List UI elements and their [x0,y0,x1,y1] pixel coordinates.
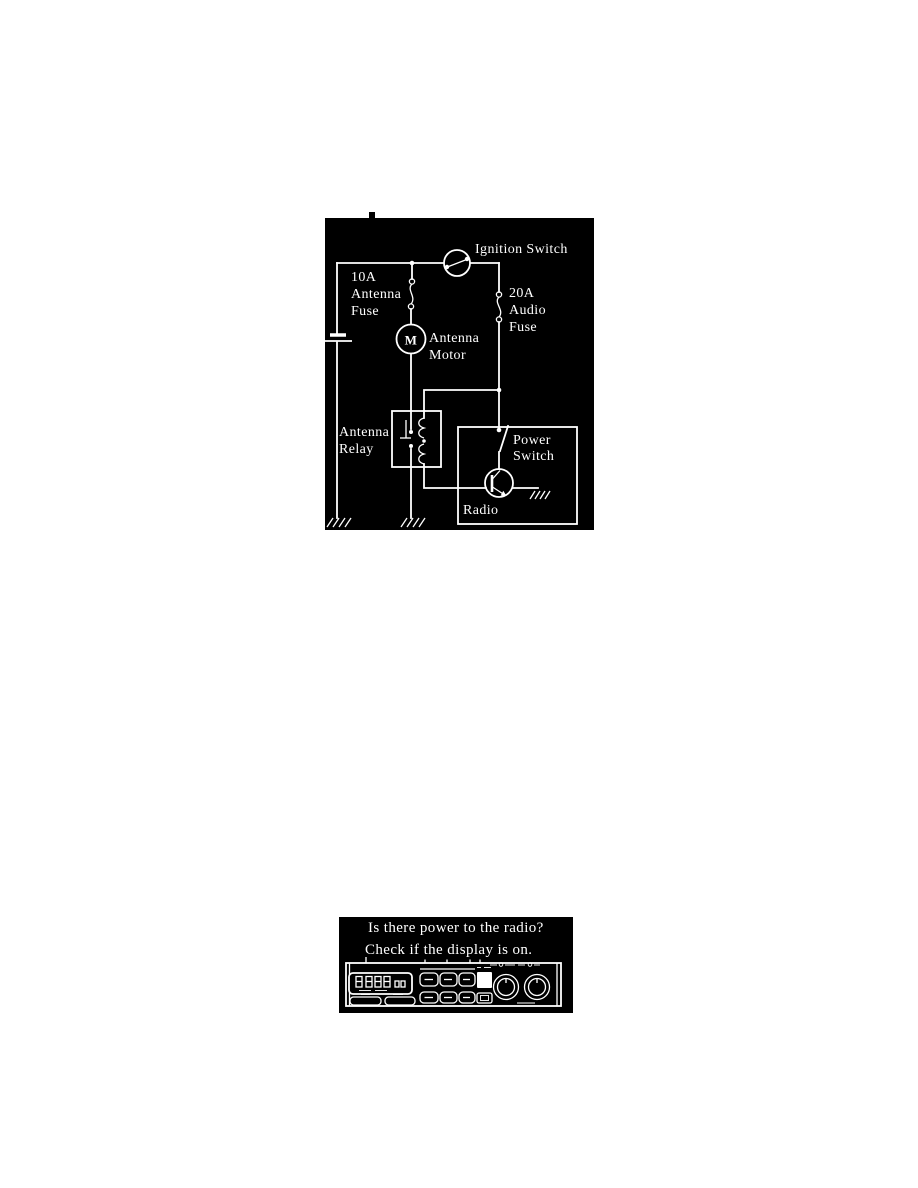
antenna-circuit-svg: Ignition Switch 10A Antenna Fuse 20A Aud… [325,218,594,530]
audio-fuse-icon [496,292,501,322]
svg-text:Fuse: Fuse [351,304,379,319]
radio-power-check-figure: Is there power to the radio? Check if th… [339,917,573,1013]
svg-text:Relay: Relay [339,442,374,457]
radio-display [349,973,412,994]
antenna-relay-label: Antenna Relay [339,425,390,457]
battery-icon [325,335,352,341]
svg-text:20A: 20A [509,286,535,301]
antenna-relay-icon [392,411,441,467]
transistor-icon [485,469,513,497]
svg-text:M: M [405,333,418,348]
svg-text:Power: Power [513,433,551,448]
svg-text:Switch: Switch [513,449,554,464]
svg-text:Motor: Motor [429,348,466,363]
svg-text:Fuse: Fuse [509,320,537,335]
svg-text:Antenna: Antenna [351,287,402,302]
svg-text:Audio: Audio [509,303,546,318]
radio-check-svg: Is there power to the radio? Check if th… [339,917,573,1013]
svg-text:Check if the display is on.: Check if the display is on. [365,942,532,958]
svg-text:Is there power to the radio?: Is there power to the radio? [368,920,544,936]
antenna-motor-icon: M [397,325,426,354]
radio-label: Radio [463,503,498,518]
power-switch-icon [497,426,508,451]
ground-icon-left [327,518,351,527]
antenna-fuse-icon [408,279,414,309]
ignition-switch-icon [444,250,470,276]
radio-faceplate [346,960,561,1007]
audio-fuse-label: 20A Audio Fuse [509,286,546,335]
antenna-fuse-label: 10A Antenna Fuse [351,270,402,319]
svg-text:10A: 10A [351,270,377,285]
power-switch-label: Power Switch [513,433,554,464]
junction-dots [410,261,502,393]
check-question-text: Is there power to the radio? Check if th… [365,920,544,958]
ground-icon-radio [530,491,550,499]
ground-icon-center [401,518,425,527]
antenna-circuit-diagram: Ignition Switch 10A Antenna Fuse 20A Aud… [325,218,594,530]
ignition-switch-label: Ignition Switch [475,242,568,257]
svg-text:Antenna: Antenna [429,331,480,346]
antenna-motor-label: Antenna Motor [429,331,480,363]
svg-text:Antenna: Antenna [339,425,390,440]
